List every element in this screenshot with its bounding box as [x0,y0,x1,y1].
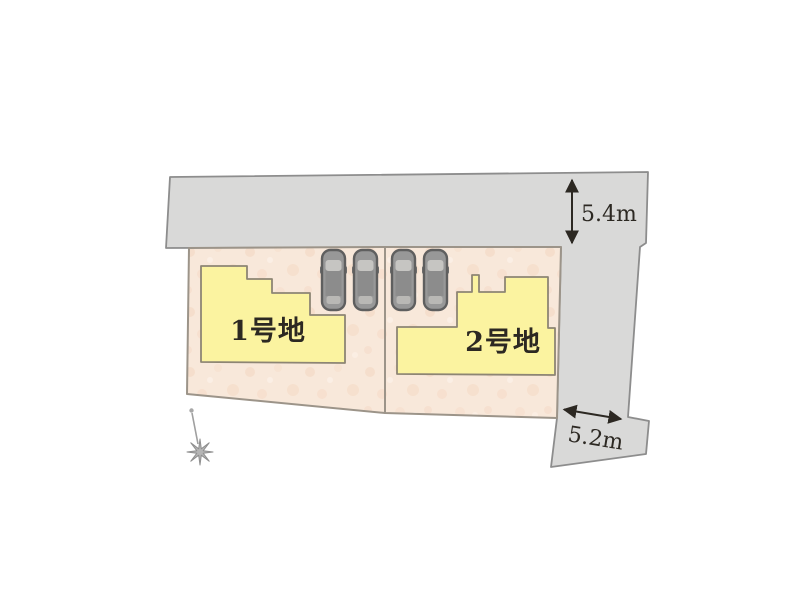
compass-star-icon [187,408,213,465]
car-icon [352,250,379,310]
car-icon [390,250,417,310]
car-icon [422,250,449,310]
top-road-width-label: 5.4m [581,202,637,227]
plot-1-label: 1号地 [230,316,306,347]
site-plan-canvas: 1号地 2号地 5.4m 5.2m [0,0,800,600]
site-plan-svg: 1号地 2号地 5.4m 5.2m [0,0,800,600]
car-icon [320,250,347,310]
plot-2-label: 2号地 [465,327,541,358]
